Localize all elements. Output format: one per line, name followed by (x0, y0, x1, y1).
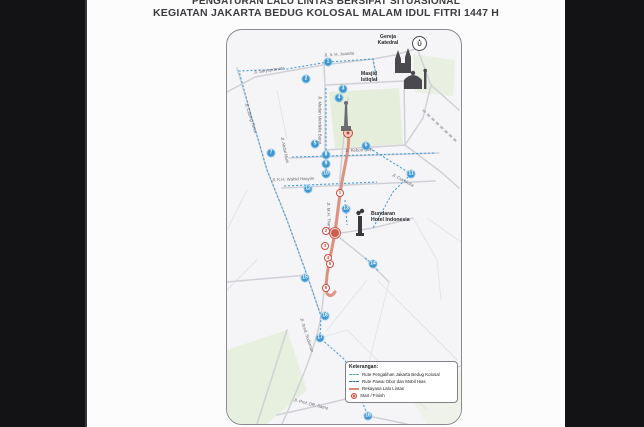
diversion-point-marker-16: 16 (321, 312, 330, 321)
label-gereja-katedral: Gereja Katedral (378, 35, 399, 46)
label-masjid-istiqlal: Masjid Istiqlal (361, 72, 377, 83)
diversion-point-marker-12: 12 (304, 185, 313, 194)
diversion-point-marker-15: 15 (301, 274, 310, 283)
legend-items: Rute Pengalihan Jakarta Bedug KolosalRut… (349, 371, 454, 399)
diversion-point-marker-14: 14 (369, 260, 378, 269)
diversion-point-marker-9: 9 (322, 160, 331, 169)
traffic-control-marker-2: 2 (322, 227, 330, 235)
document-page: PENGATURAN LALU LINTAS BERSIFAT SITUASIO… (85, 0, 565, 427)
diversion-point-marker-8: 8 (322, 151, 331, 160)
legend-item: Rekayasa Lalu Lintas (349, 385, 454, 392)
legend-swatch-line-salmon (349, 388, 359, 390)
traffic-control-marker-5: 5 (326, 260, 334, 268)
map-legend: Keterangan: Rute Pengalihan Jakarta Bedu… (345, 361, 458, 403)
legend-label: Rute Pawai Obor dan Mobil Hias (362, 379, 426, 384)
legend-swatch-circle-red (351, 393, 357, 399)
document-title-line2: KEGIATAN JAKARTA BEDUG KOLOSAL MALAM IDU… (87, 7, 565, 19)
diversion-point-marker-13: 13 (342, 205, 351, 214)
legend-title: Keterangan: (349, 364, 454, 370)
diversion-point-marker-2: 2 (302, 75, 311, 84)
diversion-point-marker-17: 17 (316, 334, 325, 343)
image-viewer-background: PENGATURAN LALU LINTAS BERSIFAT SITUASIO… (0, 0, 644, 427)
document-title-line1: PENGATURAN LALU LINTAS BERSIFAT SITUASIO… (87, 0, 565, 7)
label-bundaran-hi: Bundaran Hotel Indonesia (371, 212, 410, 223)
bundaran-hi-roundabout-marker (330, 228, 340, 238)
mosque-icon (403, 66, 429, 89)
diversion-point-marker-10: 10 (322, 170, 331, 179)
legend-label: Rute Pengalihan Jakarta Bedug Kolosal (362, 372, 440, 377)
street-label: Jl. Medan Merdeka Barat (318, 96, 323, 144)
legend-label: Rekayasa Lalu Lintas (362, 386, 404, 391)
park-area-southwest (227, 330, 307, 424)
diversion-point-marker-11: 11 (407, 170, 416, 179)
compass-letter: U (417, 42, 421, 48)
legend-item: Rute Pawai Obor dan Mobil Hias (349, 378, 454, 385)
traffic-control-marker-3: 3 (321, 242, 329, 250)
traffic-control-marker-1: 1 (336, 189, 344, 197)
railway-line (423, 110, 457, 142)
diversion-point-marker-7: 7 (267, 149, 276, 158)
diversion-point-marker-3: 3 (339, 85, 348, 94)
legend-swatch-dash-blue (349, 374, 359, 375)
legend-swatch-dash-navy (349, 381, 359, 382)
legend-item: Start / Finish (349, 392, 454, 399)
diversion-point-marker-18: 18 (364, 412, 373, 421)
north-compass-icon: ▲ U (412, 36, 427, 51)
bundaran-hi-monument-icon (354, 206, 366, 236)
traffic-control-marker-6: 6 (322, 284, 330, 292)
diversion-point-marker-1: 1 (324, 58, 333, 67)
monas-icon (339, 99, 353, 132)
diversion-point-marker-6: 6 (362, 142, 371, 151)
legend-label: Start / Finish (360, 393, 385, 398)
diversion-point-marker-5: 5 (311, 140, 320, 149)
legend-item: Rute Pengalihan Jakarta Bedug Kolosal (349, 371, 454, 378)
map-canvas: Jl. Ir. H. JuandaJl. SuryopranotoJl. Cid… (226, 29, 462, 425)
